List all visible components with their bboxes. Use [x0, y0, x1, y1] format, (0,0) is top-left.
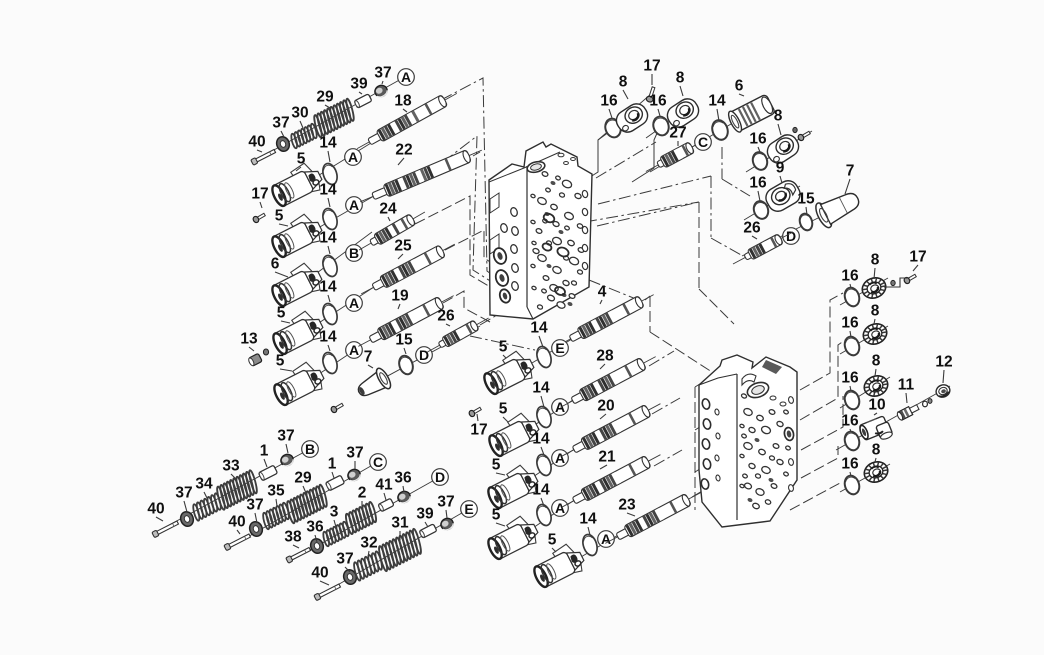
- svg-text:26: 26: [437, 308, 455, 325]
- svg-text:5: 5: [499, 401, 508, 418]
- svg-text:14: 14: [319, 329, 337, 346]
- svg-text:8: 8: [676, 70, 685, 87]
- svg-text:A: A: [349, 295, 359, 311]
- svg-text:8: 8: [872, 353, 881, 370]
- svg-text:40: 40: [147, 501, 164, 518]
- svg-text:7: 7: [364, 349, 373, 366]
- svg-text:20: 20: [597, 398, 614, 415]
- svg-text:E: E: [555, 340, 564, 356]
- svg-text:39: 39: [350, 76, 368, 93]
- svg-text:21: 21: [598, 449, 616, 466]
- svg-text:16: 16: [841, 370, 859, 387]
- svg-text:17: 17: [251, 186, 268, 203]
- svg-text:2: 2: [358, 485, 367, 502]
- svg-text:28: 28: [596, 348, 614, 365]
- svg-text:14: 14: [532, 482, 550, 499]
- svg-text:32: 32: [360, 535, 377, 552]
- svg-text:37: 37: [336, 551, 353, 568]
- svg-text:35: 35: [267, 483, 285, 500]
- svg-text:16: 16: [749, 175, 767, 192]
- svg-text:6: 6: [271, 256, 280, 273]
- svg-text:5: 5: [276, 353, 285, 370]
- svg-text:B: B: [305, 441, 315, 457]
- svg-text:31: 31: [391, 515, 409, 532]
- svg-text:5: 5: [275, 208, 284, 225]
- svg-text:A: A: [601, 531, 611, 547]
- svg-text:5: 5: [499, 339, 508, 356]
- svg-text:16: 16: [841, 315, 859, 332]
- svg-text:5: 5: [297, 151, 306, 168]
- svg-text:A: A: [401, 69, 411, 85]
- svg-text:38: 38: [284, 529, 302, 546]
- svg-text:9: 9: [776, 160, 785, 177]
- svg-text:40: 40: [311, 565, 328, 582]
- svg-text:A: A: [555, 399, 565, 415]
- svg-text:E: E: [464, 501, 473, 517]
- svg-text:8: 8: [774, 108, 783, 125]
- svg-text:37: 37: [246, 497, 263, 514]
- svg-text:40: 40: [228, 514, 245, 531]
- svg-text:17: 17: [909, 249, 926, 266]
- svg-text:15: 15: [797, 191, 815, 208]
- svg-text:11: 11: [898, 377, 915, 394]
- svg-text:4: 4: [598, 284, 607, 301]
- svg-text:8: 8: [619, 74, 628, 91]
- svg-text:A: A: [348, 149, 358, 165]
- svg-text:5: 5: [277, 305, 286, 322]
- svg-text:14: 14: [319, 135, 337, 152]
- svg-text:29: 29: [294, 470, 312, 487]
- svg-text:16: 16: [841, 413, 859, 430]
- svg-text:30: 30: [291, 105, 308, 122]
- svg-text:40: 40: [248, 134, 265, 151]
- svg-text:14: 14: [579, 511, 597, 528]
- svg-text:A: A: [555, 500, 565, 516]
- svg-text:25: 25: [394, 238, 412, 255]
- svg-text:39: 39: [416, 506, 434, 523]
- svg-text:37: 37: [374, 65, 391, 82]
- svg-text:A: A: [349, 342, 359, 358]
- svg-text:37: 37: [277, 428, 294, 445]
- svg-text:7: 7: [846, 163, 855, 180]
- svg-text:23: 23: [618, 497, 636, 514]
- svg-text:37: 37: [437, 494, 454, 511]
- svg-text:8: 8: [871, 252, 880, 269]
- svg-text:14: 14: [319, 230, 337, 247]
- svg-text:B: B: [349, 245, 359, 261]
- svg-text:13: 13: [240, 331, 258, 348]
- svg-text:1: 1: [260, 443, 269, 460]
- svg-text:D: D: [786, 228, 796, 244]
- svg-text:15: 15: [395, 332, 413, 349]
- svg-text:C: C: [698, 134, 708, 150]
- svg-text:34: 34: [195, 476, 213, 493]
- svg-text:24: 24: [379, 201, 397, 218]
- svg-text:36: 36: [394, 470, 412, 487]
- svg-text:27: 27: [669, 125, 686, 142]
- svg-text:8: 8: [871, 303, 880, 320]
- svg-text:37: 37: [346, 445, 363, 462]
- svg-text:D: D: [419, 347, 429, 363]
- svg-text:A: A: [349, 197, 359, 213]
- svg-text:5: 5: [492, 507, 501, 524]
- svg-text:6: 6: [735, 78, 744, 95]
- svg-text:14: 14: [532, 431, 550, 448]
- svg-text:37: 37: [272, 115, 289, 132]
- svg-text:10: 10: [868, 397, 885, 414]
- svg-text:14: 14: [319, 182, 337, 199]
- svg-text:12: 12: [935, 354, 952, 371]
- svg-text:D: D: [435, 469, 445, 485]
- svg-text:8: 8: [872, 442, 881, 459]
- svg-text:16: 16: [749, 131, 767, 148]
- svg-text:26: 26: [743, 220, 761, 237]
- svg-text:36: 36: [306, 519, 324, 536]
- svg-text:17: 17: [643, 58, 660, 75]
- svg-text:5: 5: [548, 532, 557, 549]
- svg-text:16: 16: [841, 268, 859, 285]
- svg-text:3: 3: [330, 504, 339, 521]
- svg-text:18: 18: [394, 93, 412, 110]
- svg-text:5: 5: [492, 457, 501, 474]
- svg-text:1: 1: [328, 456, 337, 473]
- svg-text:14: 14: [319, 279, 337, 296]
- svg-text:19: 19: [391, 288, 409, 305]
- svg-text:41: 41: [375, 477, 393, 494]
- svg-text:37: 37: [175, 485, 192, 502]
- svg-text:29: 29: [316, 89, 334, 106]
- svg-text:16: 16: [841, 456, 859, 473]
- svg-text:33: 33: [222, 458, 240, 475]
- svg-text:17: 17: [470, 422, 487, 439]
- svg-text:C: C: [373, 454, 383, 470]
- svg-text:16: 16: [600, 93, 618, 110]
- svg-text:16: 16: [649, 93, 667, 110]
- svg-text:22: 22: [395, 142, 412, 159]
- svg-text:14: 14: [708, 93, 726, 110]
- svg-text:14: 14: [530, 320, 548, 337]
- svg-text:A: A: [555, 450, 565, 466]
- svg-text:14: 14: [532, 380, 550, 397]
